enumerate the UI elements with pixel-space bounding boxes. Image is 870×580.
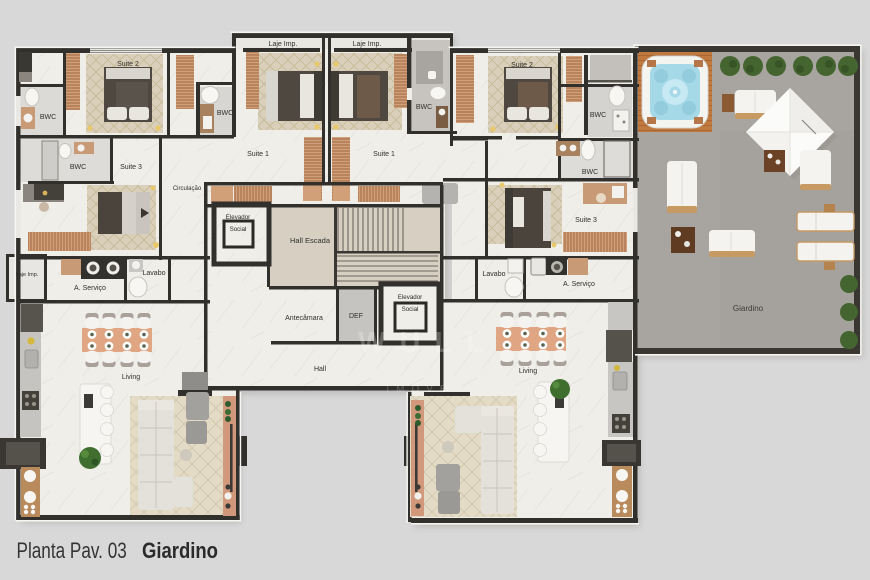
svg-text:A. Serviço: A. Serviço — [74, 285, 106, 292]
svg-text:Circulação: Circulação — [173, 186, 202, 192]
svg-text:Planta Pav. 03: Planta Pav. 03 — [17, 539, 127, 564]
svg-text:Giardino: Giardino — [142, 540, 218, 564]
svg-text:Antecâmara: Antecâmara — [285, 315, 323, 322]
svg-text:IMÓVE: IMÓVE — [386, 382, 453, 395]
svg-text:DEF: DEF — [349, 313, 363, 320]
svg-text:BWC: BWC — [582, 169, 598, 176]
svg-text:Elevador: Elevador — [398, 294, 422, 301]
svg-text:Laje Imp.: Laje Imp. — [269, 41, 298, 48]
svg-text:BWC: BWC — [590, 112, 606, 119]
svg-text:Suite 2: Suite 2 — [511, 62, 533, 69]
svg-text:Laje Imp.: Laje Imp. — [353, 41, 382, 48]
svg-text:Suite 1: Suite 1 — [373, 151, 395, 158]
svg-text:Living: Living — [122, 374, 140, 381]
svg-text:Hall: Hall — [314, 366, 327, 373]
svg-text:BWC: BWC — [70, 164, 86, 171]
svg-text:A. Serviço: A. Serviço — [563, 281, 595, 288]
svg-text:BWC: BWC — [416, 104, 432, 111]
svg-text:Living: Living — [519, 368, 537, 375]
svg-text:Suite 2: Suite 2 — [117, 61, 139, 68]
svg-text:Lavabo: Lavabo — [143, 270, 166, 277]
svg-text:BWC: BWC — [217, 110, 233, 117]
svg-text:BWC: BWC — [40, 114, 56, 121]
svg-text:Social: Social — [402, 306, 419, 313]
svg-text:Suite 1: Suite 1 — [247, 151, 269, 158]
svg-text:Giardino: Giardino — [733, 304, 764, 313]
svg-text:Hall Escada: Hall Escada — [290, 236, 331, 245]
svg-text:Social: Social — [230, 226, 247, 233]
svg-text:Suite 3: Suite 3 — [120, 164, 142, 171]
svg-text:Suite 3: Suite 3 — [575, 217, 597, 224]
svg-text:WULL: WULL — [358, 327, 498, 359]
svg-text:Elevador: Elevador — [226, 214, 250, 221]
svg-text:Lavabo: Lavabo — [483, 271, 506, 278]
svg-text:Laje Imp.: Laje Imp. — [16, 272, 39, 278]
